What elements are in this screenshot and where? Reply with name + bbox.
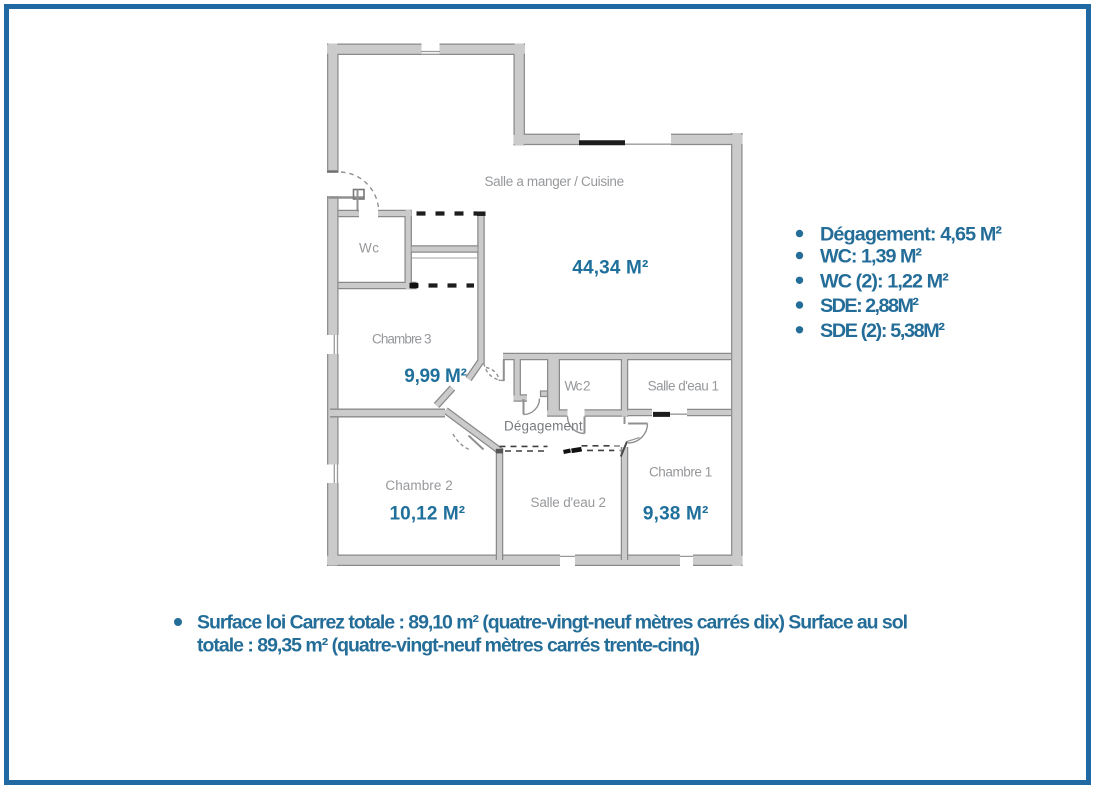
- svg-text:9,38 M²: 9,38 M²: [643, 504, 708, 525]
- svg-text:10,12 M²: 10,12 M²: [390, 504, 466, 525]
- svg-text:WC (2): 1,22 M²: WC (2): 1,22 M²: [820, 270, 949, 292]
- svg-text:Surface loi Carrez totale : 89: Surface loi Carrez totale : 89,10 m² (qu…: [197, 612, 908, 634]
- svg-text:Chambre 1: Chambre 1: [649, 465, 712, 480]
- svg-text:SDE (2): 5,38M²: SDE (2): 5,38M²: [820, 320, 945, 342]
- svg-text:Chambre 2: Chambre 2: [385, 478, 452, 493]
- svg-text:totale : 89,35 m² (quatre-ving: totale : 89,35 m² (quatre-vingt-neuf mèt…: [197, 635, 700, 657]
- svg-text:9,99 M²: 9,99 M²: [404, 366, 467, 387]
- svg-text:Dégagement: 4,65 M²: Dégagement: 4,65 M²: [820, 224, 1002, 246]
- svg-text:44,34 M²: 44,34 M²: [572, 258, 648, 279]
- svg-text:SDE: 2,88M²: SDE: 2,88M²: [820, 295, 919, 317]
- svg-text:WC: 1,39 M²: WC: 1,39 M²: [820, 246, 922, 268]
- svg-text:Salle a manger / Cuisine: Salle a manger / Cuisine: [485, 174, 625, 189]
- svg-text:Salle d'eau 2: Salle d'eau 2: [531, 495, 607, 510]
- svg-text:Wc: Wc: [359, 241, 379, 256]
- svg-text:Chambre 3: Chambre 3: [372, 332, 432, 347]
- svg-text:Salle d'eau 1: Salle d'eau 1: [648, 379, 719, 394]
- svg-text:Wc 2: Wc 2: [565, 379, 591, 394]
- svg-text:Dégagement: Dégagement: [504, 419, 583, 434]
